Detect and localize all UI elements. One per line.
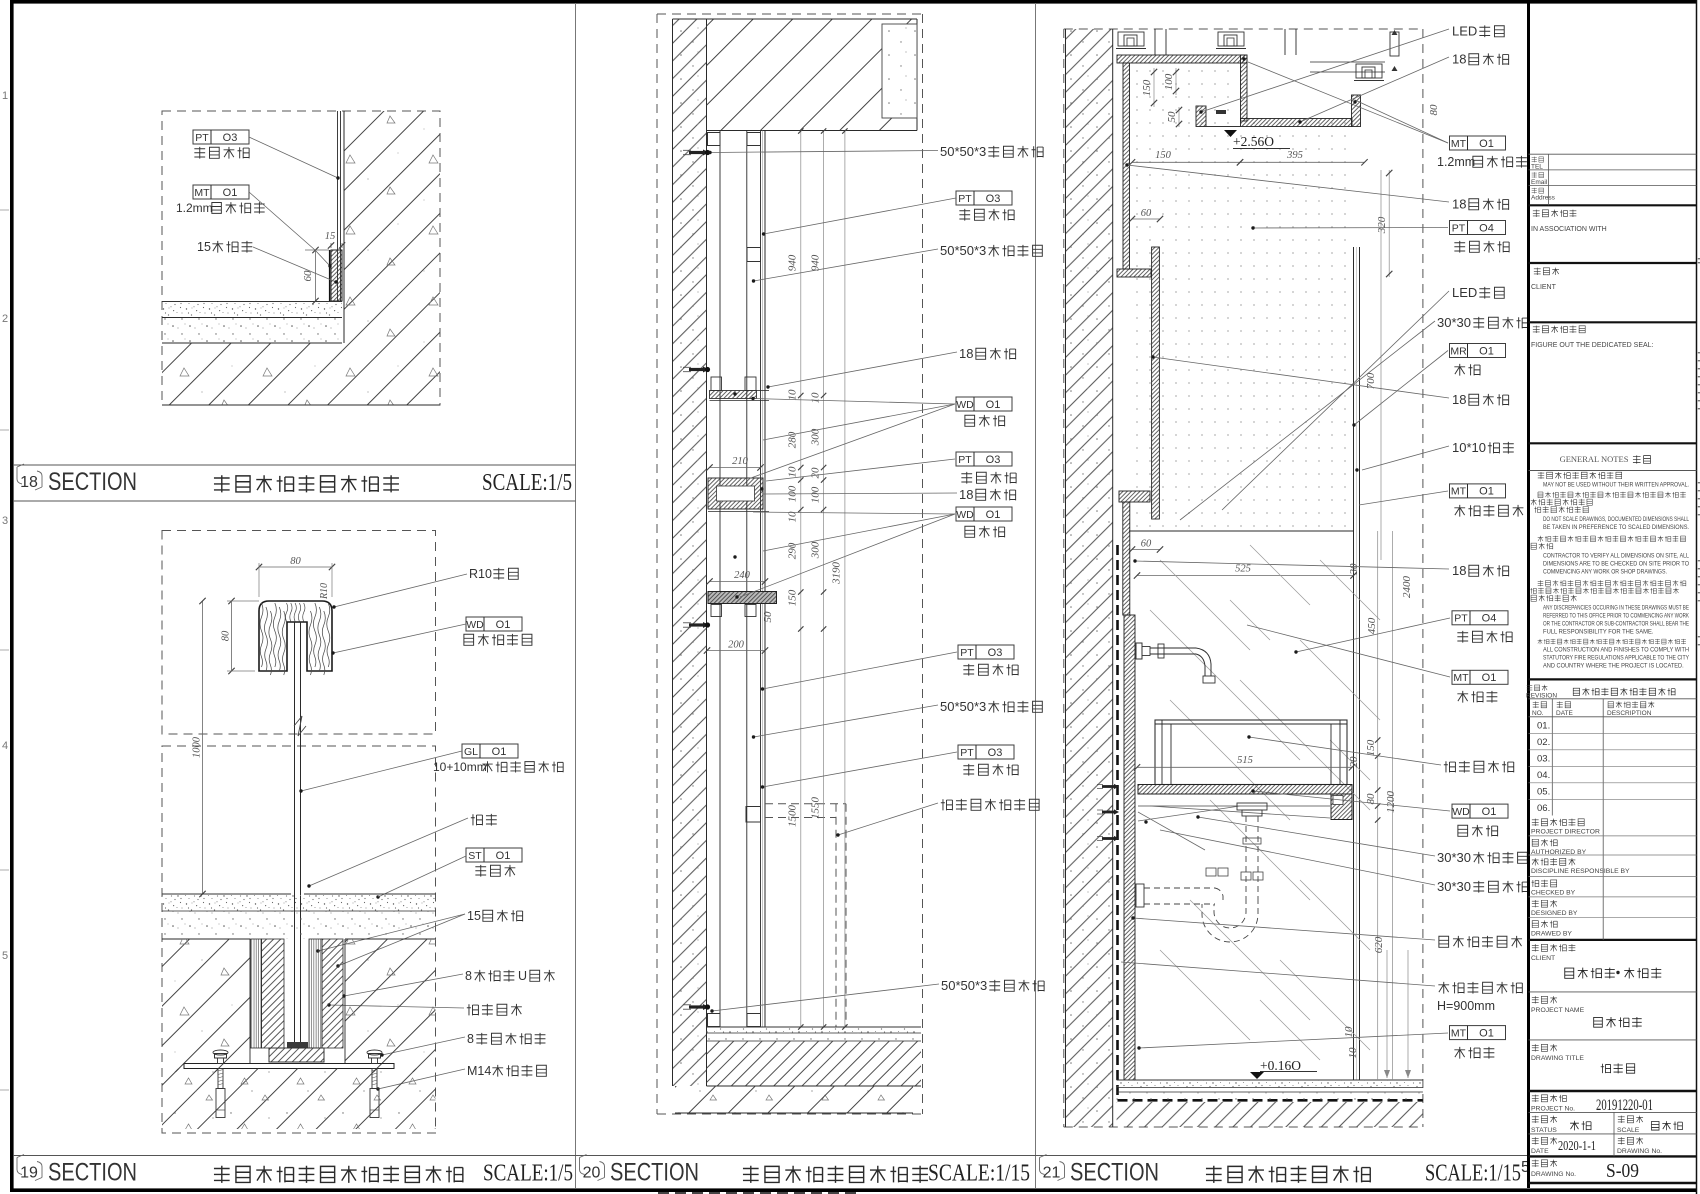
- svg-text:TEL: TEL: [1531, 163, 1543, 170]
- svg-text:O4: O4: [1482, 613, 1497, 625]
- svg-text:50: 50: [1166, 111, 1178, 123]
- svg-text:O1: O1: [496, 619, 511, 631]
- svg-text:04.: 04.: [1537, 770, 1550, 781]
- svg-text:320: 320: [1376, 216, 1388, 234]
- svg-text:1200: 1200: [1385, 791, 1397, 814]
- svg-text:Email: Email: [1531, 179, 1548, 186]
- svg-text:18: 18: [959, 346, 973, 361]
- svg-text:O1: O1: [1479, 486, 1494, 498]
- svg-text:DIMENSIONS ARE TO BE CHECKED O: DIMENSIONS ARE TO BE CHECKED ON SITE PRI…: [1543, 561, 1689, 568]
- svg-text:PROJECT DIRECTOR: PROJECT DIRECTOR: [1531, 829, 1600, 836]
- svg-text:ST: ST: [468, 850, 482, 862]
- svg-text:50*50*3: 50*50*3: [940, 243, 986, 258]
- svg-text:8: 8: [465, 969, 472, 983]
- svg-text:IN ASSOCIATION WITH: IN ASSOCIATION WITH: [1531, 226, 1607, 233]
- svg-text:02.: 02.: [1537, 737, 1550, 748]
- svg-text:8: 8: [467, 1032, 474, 1046]
- svg-text:1000: 1000: [192, 736, 203, 758]
- svg-text:MT: MT: [1451, 1027, 1467, 1039]
- svg-text:GENERAL NOTES: GENERAL NOTES: [1560, 454, 1629, 464]
- svg-text:O1: O1: [1479, 138, 1494, 150]
- svg-text:2: 2: [2, 313, 8, 325]
- svg-text:CHECKED BY: CHECKED BY: [1531, 890, 1576, 897]
- svg-text:10: 10: [1347, 1047, 1359, 1059]
- svg-text:2400: 2400: [1401, 576, 1413, 599]
- svg-text:80: 80: [1428, 104, 1440, 116]
- svg-text:+0.16O: +0.16O: [1260, 1058, 1301, 1073]
- svg-text:LED: LED: [1452, 24, 1477, 39]
- svg-text:SECTION: SECTION: [1070, 1159, 1159, 1187]
- svg-text:20: 20: [1348, 756, 1360, 768]
- svg-text:18: 18: [20, 474, 38, 491]
- svg-text:R10: R10: [319, 583, 330, 600]
- svg-text:450: 450: [1366, 617, 1378, 634]
- svg-text:1.2mm: 1.2mm: [1437, 155, 1475, 169]
- svg-text:MT: MT: [1453, 672, 1469, 684]
- svg-text:O1: O1: [492, 746, 507, 758]
- svg-text:WD: WD: [956, 399, 974, 411]
- svg-text:PT: PT: [958, 193, 972, 205]
- svg-text:DISCIPLINE RESPONSIBLE BY: DISCIPLINE RESPONSIBLE BY: [1531, 868, 1630, 875]
- svg-text:515: 515: [1237, 755, 1253, 766]
- svg-text:ALL CONSTRUCTION AND FINISHES: ALL CONSTRUCTION AND FINISHES TO COMPLY …: [1543, 647, 1689, 654]
- svg-text:10: 10: [787, 466, 799, 478]
- svg-text:STATUTORY FIRE REGULATIONS APP: STATUTORY FIRE REGULATIONS APPLICABLE TO…: [1543, 655, 1690, 662]
- svg-text:DESCRIPTION: DESCRIPTION: [1607, 710, 1652, 717]
- svg-text:DRAWING No.: DRAWING No.: [1531, 1171, 1576, 1178]
- svg-text:PROJECT NAME: PROJECT NAME: [1531, 1007, 1585, 1014]
- svg-text:PT: PT: [195, 132, 209, 144]
- svg-text:06.: 06.: [1537, 803, 1550, 814]
- svg-text:SECTION: SECTION: [48, 1159, 137, 1187]
- svg-text:10*10: 10*10: [1452, 440, 1486, 455]
- svg-text:CONTRACTOR TO VERIFY ALL DIMEN: CONTRACTOR TO VERIFY ALL DIMENSIONS ON S…: [1543, 553, 1689, 560]
- svg-text:DRAWED BY: DRAWED BY: [1531, 930, 1572, 937]
- svg-text:ANY DISCREPANCIES OCCURING IN: ANY DISCREPANCIES OCCURING IN THESE DRAW…: [1543, 605, 1689, 612]
- svg-text:FULL RESPONSIBILITY FOR THE SA: FULL RESPONSIBILITY FOR THE SAME.: [1543, 629, 1654, 636]
- svg-text:SECTION: SECTION: [610, 1159, 699, 1187]
- svg-text:SCALE:1/15: SCALE:1/15: [1425, 1161, 1521, 1187]
- svg-text:1.2mm: 1.2mm: [176, 201, 213, 215]
- svg-text:1550: 1550: [809, 797, 821, 820]
- svg-text:DATE: DATE: [1556, 710, 1574, 717]
- svg-text:19: 19: [20, 1165, 38, 1182]
- svg-text:100: 100: [1163, 73, 1175, 90]
- svg-text:MT: MT: [194, 187, 210, 199]
- svg-text:PT: PT: [960, 647, 974, 659]
- svg-text:FIGURE OUT THE DEDICATED SEAL:: FIGURE OUT THE DEDICATED SEAL:: [1531, 342, 1654, 349]
- svg-text:1500: 1500: [787, 805, 799, 828]
- svg-text:WD: WD: [1452, 806, 1470, 818]
- svg-text:SCALE: SCALE: [1617, 1127, 1640, 1134]
- svg-text:NO.: NO.: [1532, 710, 1544, 717]
- svg-text:15: 15: [197, 240, 211, 254]
- svg-text:50: 50: [762, 611, 774, 623]
- svg-text:SECTION: SECTION: [48, 468, 137, 496]
- svg-text:CLIENT: CLIENT: [1531, 284, 1557, 291]
- svg-text:50*50*3: 50*50*3: [941, 978, 987, 993]
- svg-text:WD: WD: [466, 619, 484, 631]
- svg-text:18: 18: [1452, 563, 1466, 578]
- svg-text:50*50*3: 50*50*3: [940, 699, 986, 714]
- svg-text:MR: MR: [1450, 345, 1467, 357]
- svg-text:60: 60: [1141, 539, 1152, 550]
- svg-text:O1: O1: [1479, 1027, 1494, 1039]
- svg-text:940: 940: [787, 254, 799, 271]
- svg-text:GL: GL: [464, 746, 478, 758]
- svg-text:18: 18: [959, 487, 973, 502]
- svg-text:210: 210: [732, 456, 749, 467]
- svg-text:30: 30: [1348, 563, 1360, 576]
- svg-text:SCALE:1/15: SCALE:1/15: [928, 1161, 1030, 1187]
- svg-text:525: 525: [1235, 564, 1251, 575]
- svg-text:PT: PT: [1452, 222, 1466, 234]
- svg-text:18: 18: [1452, 197, 1466, 212]
- svg-text:80: 80: [221, 630, 232, 641]
- svg-text:20: 20: [809, 467, 821, 479]
- svg-text:20191220-01: 20191220-01: [1596, 1097, 1653, 1114]
- svg-text:M14: M14: [467, 1064, 491, 1078]
- svg-text:U: U: [518, 969, 527, 983]
- svg-text:150: 150: [787, 589, 799, 606]
- svg-text:REVISION: REVISION: [1526, 693, 1557, 700]
- svg-text:PT: PT: [958, 454, 972, 466]
- svg-text:30*30: 30*30: [1437, 315, 1471, 330]
- svg-text:1: 1: [2, 90, 8, 102]
- svg-text:PT: PT: [1454, 613, 1468, 625]
- svg-text:60: 60: [1141, 208, 1152, 219]
- svg-text:PROJECT No.: PROJECT No.: [1531, 1106, 1575, 1113]
- svg-text:O1: O1: [223, 187, 238, 199]
- svg-text:15: 15: [467, 909, 481, 923]
- svg-text:CLIENT: CLIENT: [1531, 955, 1555, 962]
- svg-text:5: 5: [2, 950, 8, 962]
- svg-text:30*30: 30*30: [1437, 850, 1471, 865]
- svg-text:O1: O1: [1482, 806, 1497, 818]
- svg-text:H=900mm: H=900mm: [1437, 999, 1495, 1013]
- svg-text:10: 10: [1343, 1026, 1355, 1038]
- svg-text:O1: O1: [496, 850, 511, 862]
- svg-text:30*30: 30*30: [1437, 879, 1471, 894]
- svg-text:240: 240: [734, 570, 751, 581]
- svg-text:01.: 01.: [1537, 721, 1550, 732]
- svg-text:REFERRED TO THIS OFFICE PRIOR: REFERRED TO THIS OFFICE PRIOR TO COMMENC…: [1543, 613, 1690, 620]
- svg-text:MAY NOT BE USED WITHOUT THEIR: MAY NOT BE USED WITHOUT THEIR WRITTEN AP…: [1543, 482, 1689, 489]
- svg-text:O4: O4: [1479, 222, 1494, 234]
- svg-text:10+10mm: 10+10mm: [433, 760, 487, 774]
- svg-text:DATE: DATE: [1531, 1148, 1549, 1155]
- svg-text:MT: MT: [1451, 138, 1467, 150]
- svg-text:2020-1-1: 2020-1-1: [1558, 1138, 1596, 1153]
- svg-text:+2.56O: +2.56O: [1233, 134, 1274, 149]
- svg-text:R10: R10: [469, 567, 492, 581]
- svg-text:50*50*3: 50*50*3: [940, 144, 986, 159]
- svg-text:O1: O1: [1482, 672, 1497, 684]
- svg-text:395: 395: [1286, 150, 1303, 161]
- svg-text:940: 940: [809, 254, 821, 271]
- svg-text:3190: 3190: [831, 562, 843, 586]
- svg-text:150: 150: [1155, 150, 1172, 161]
- svg-text:05.: 05.: [1537, 787, 1550, 798]
- svg-text:150: 150: [1365, 739, 1377, 756]
- svg-text:O1: O1: [986, 399, 1001, 411]
- svg-text:18: 18: [1452, 392, 1466, 407]
- svg-text:WD: WD: [956, 509, 974, 521]
- svg-text:O3: O3: [223, 132, 238, 144]
- svg-text:OR THE CONTRACTOR OR SUB-CONTR: OR THE CONTRACTOR OR SUB-CONTRACTOR SHAL…: [1543, 621, 1689, 628]
- svg-text:O3: O3: [988, 647, 1003, 659]
- svg-text:DRAWING No.: DRAWING No.: [1617, 1148, 1662, 1155]
- svg-text:COMMENCING ANY WORK OR SHOP DR: COMMENCING ANY WORK OR SHOP DRAWINGS.: [1543, 569, 1667, 576]
- svg-text:O3: O3: [986, 193, 1001, 205]
- svg-text:Address: Address: [1531, 195, 1556, 202]
- svg-text:O3: O3: [986, 454, 1001, 466]
- svg-text:18: 18: [1452, 52, 1466, 67]
- svg-text:620: 620: [1373, 936, 1385, 953]
- svg-text:80: 80: [290, 556, 301, 567]
- svg-text:LED: LED: [1452, 285, 1477, 300]
- svg-text:03.: 03.: [1537, 754, 1550, 765]
- svg-text:SCALE:1/5: SCALE:1/5: [482, 470, 572, 496]
- svg-text:20: 20: [583, 1165, 601, 1182]
- svg-text:10: 10: [787, 389, 799, 401]
- svg-text:AND COUNTRY WHERE THE PROJECT: AND COUNTRY WHERE THE PROJECT IS LOCATED…: [1543, 663, 1684, 670]
- svg-text:10: 10: [809, 392, 821, 404]
- svg-text:21: 21: [1043, 1165, 1061, 1182]
- svg-text:15: 15: [325, 231, 336, 242]
- svg-text:4: 4: [2, 740, 8, 752]
- svg-text:3: 3: [2, 515, 8, 527]
- svg-text:STATUS: STATUS: [1531, 1127, 1557, 1134]
- svg-text:100: 100: [809, 486, 821, 503]
- svg-text:MT: MT: [1451, 486, 1467, 498]
- svg-text:BE TAKEN IN PREFERENCE TO SCAL: BE TAKEN IN PREFERENCE TO SCALED DIMENSI…: [1543, 524, 1689, 531]
- svg-text:DESIGNED BY: DESIGNED BY: [1531, 910, 1578, 917]
- svg-text:SCALE:1/5: SCALE:1/5: [483, 1161, 573, 1187]
- svg-text:DRAWING TITLE: DRAWING TITLE: [1531, 1055, 1584, 1062]
- svg-text:300: 300: [809, 541, 821, 559]
- svg-text:PT: PT: [960, 747, 974, 759]
- svg-text:O1: O1: [1479, 345, 1494, 357]
- svg-text:S-09: S-09: [1606, 1160, 1639, 1182]
- svg-text:200: 200: [728, 640, 745, 651]
- svg-text:150: 150: [1141, 79, 1153, 96]
- svg-text:O3: O3: [988, 747, 1003, 759]
- svg-text:DO NOT SCALE DRAWINGS, DOCUMEN: DO NOT SCALE DRAWINGS, DOCUMENTED DIMENS…: [1543, 516, 1689, 523]
- svg-text:O1: O1: [986, 509, 1001, 521]
